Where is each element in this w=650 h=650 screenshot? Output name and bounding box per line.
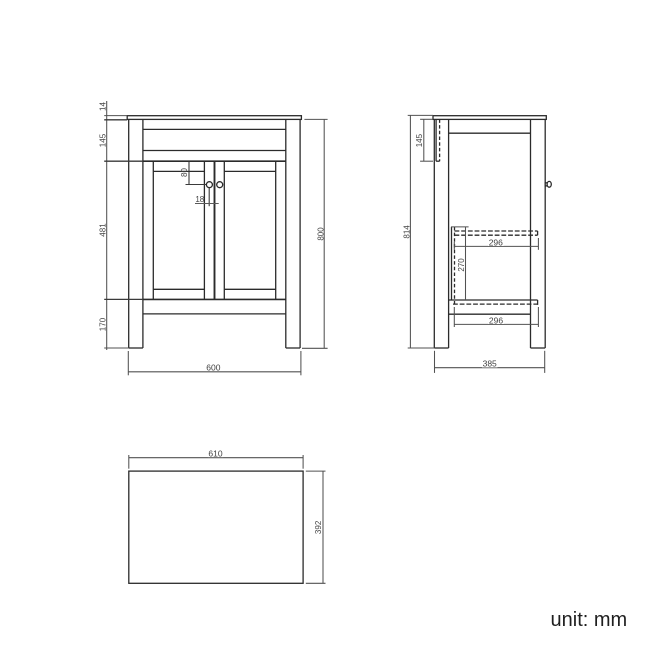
svg-text:270: 270 xyxy=(457,258,466,272)
svg-text:481: 481 xyxy=(99,223,108,237)
svg-text:392: 392 xyxy=(314,520,323,534)
svg-text:80: 80 xyxy=(180,168,189,177)
svg-text:unit: mm: unit: mm xyxy=(551,609,628,631)
svg-text:170: 170 xyxy=(99,317,108,331)
svg-text:800: 800 xyxy=(316,227,325,241)
svg-text:610: 610 xyxy=(208,448,222,458)
svg-text:145: 145 xyxy=(99,133,108,147)
svg-text:296: 296 xyxy=(489,237,503,247)
svg-text:600: 600 xyxy=(206,362,220,372)
svg-text:296: 296 xyxy=(489,315,503,325)
svg-text:385: 385 xyxy=(483,359,497,369)
svg-text:145: 145 xyxy=(415,133,424,147)
svg-text:14: 14 xyxy=(99,102,108,111)
svg-text:814: 814 xyxy=(403,225,412,239)
svg-text:18: 18 xyxy=(195,195,204,204)
